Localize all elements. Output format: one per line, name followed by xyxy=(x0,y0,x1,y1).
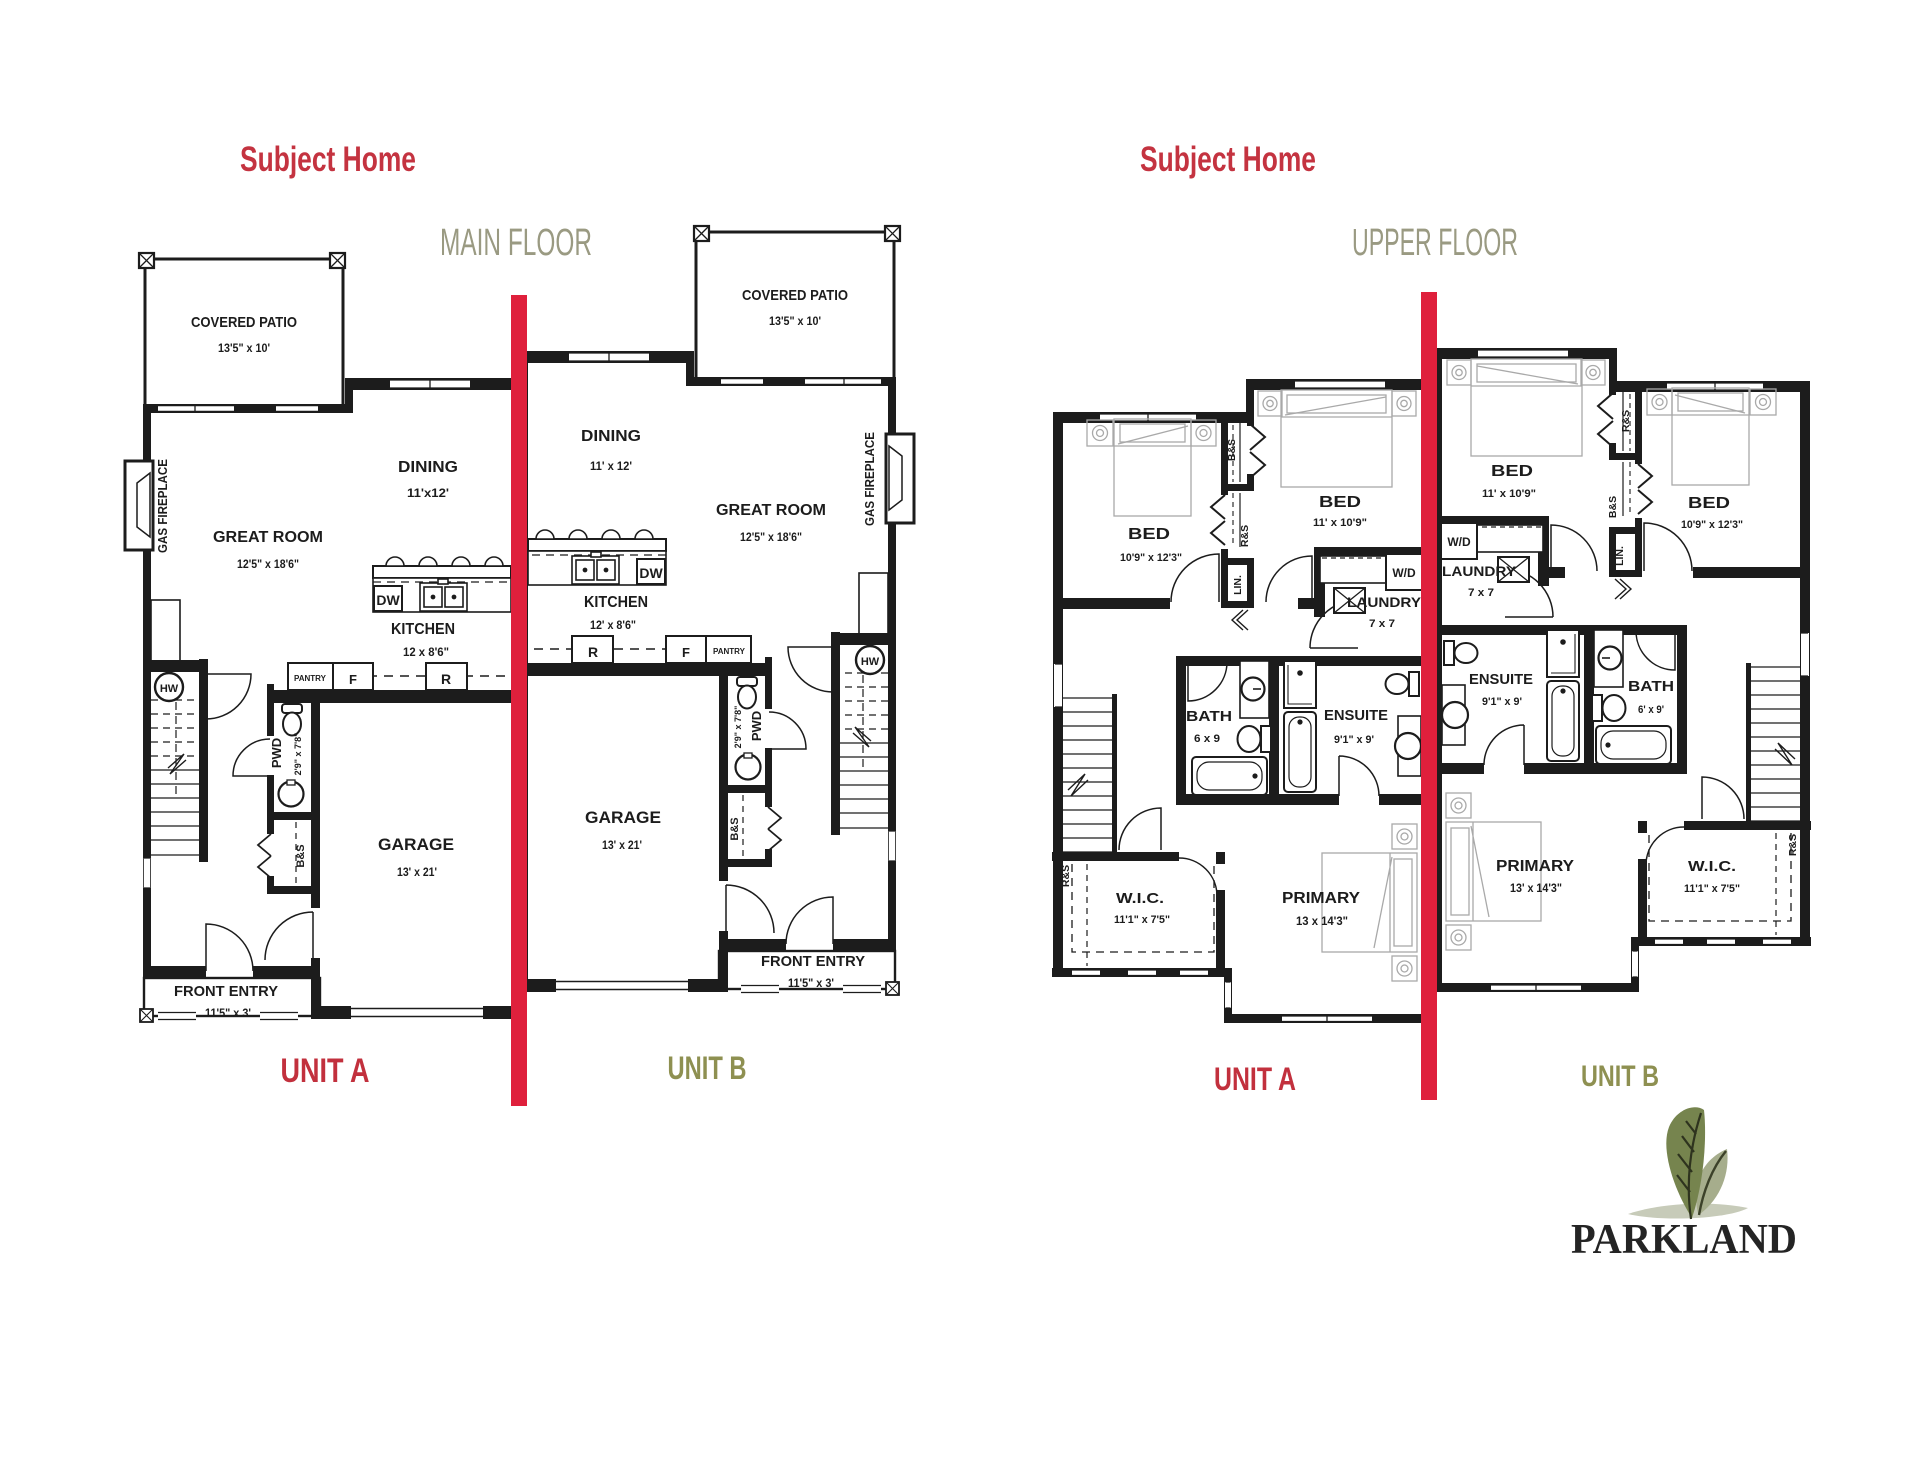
svg-text:KITCHEN: KITCHEN xyxy=(584,594,648,611)
svg-text:R&S: R&S xyxy=(1787,834,1799,856)
svg-text:13' x 21': 13' x 21' xyxy=(397,867,437,879)
svg-text:11'5" x 3': 11'5" x 3' xyxy=(205,1008,251,1020)
svg-text:PANTRY: PANTRY xyxy=(713,647,746,656)
svg-text:GREAT ROOM: GREAT ROOM xyxy=(213,529,323,546)
svg-text:UPPER FLOOR: UPPER FLOOR xyxy=(1352,222,1518,264)
svg-text:COVERED PATIO: COVERED PATIO xyxy=(742,287,848,304)
svg-text:11' x 10'9": 11' x 10'9" xyxy=(1482,488,1536,500)
svg-text:GAS FIREPLACE: GAS FIREPLACE xyxy=(156,459,170,553)
svg-text:GARAGE: GARAGE xyxy=(585,809,661,827)
svg-text:ENSUITE: ENSUITE xyxy=(1324,707,1388,724)
svg-text:BED: BED xyxy=(1491,463,1533,480)
svg-text:LAUNDRY: LAUNDRY xyxy=(1347,594,1422,610)
svg-text:W.I.C.: W.I.C. xyxy=(1116,890,1164,907)
svg-text:DW: DW xyxy=(639,565,663,581)
svg-text:FRONT ENTRY: FRONT ENTRY xyxy=(761,953,865,970)
svg-text:11'x12': 11'x12' xyxy=(407,486,449,500)
svg-text:HW: HW xyxy=(861,656,880,668)
svg-text:11' x 10'9": 11' x 10'9" xyxy=(1313,517,1367,529)
svg-text:UNIT B: UNIT B xyxy=(1581,1060,1659,1093)
svg-text:DINING: DINING xyxy=(398,459,458,476)
svg-text:UNIT A: UNIT A xyxy=(281,1052,370,1090)
svg-text:12' x 8'6": 12' x 8'6" xyxy=(590,620,636,632)
svg-text:F: F xyxy=(682,645,690,660)
svg-text:HW: HW xyxy=(160,683,179,695)
svg-text:PRIMARY: PRIMARY xyxy=(1496,858,1574,875)
svg-text:Subject Home: Subject Home xyxy=(1140,140,1316,179)
svg-text:LIN.: LIN. xyxy=(1614,546,1626,566)
svg-text:7 x 7: 7 x 7 xyxy=(1369,618,1395,630)
svg-text:BED: BED xyxy=(1128,526,1170,543)
svg-text:B&S: B&S xyxy=(729,817,741,840)
svg-text:COVERED PATIO: COVERED PATIO xyxy=(191,314,297,331)
svg-text:B&S: B&S xyxy=(1607,496,1619,518)
svg-text:BATH: BATH xyxy=(1186,708,1232,725)
svg-text:6' x 9': 6' x 9' xyxy=(1638,704,1664,716)
svg-text:LAUNDRY: LAUNDRY xyxy=(1442,563,1517,579)
svg-text:PRIMARY: PRIMARY xyxy=(1282,890,1360,907)
svg-text:LIN.: LIN. xyxy=(1232,575,1244,595)
svg-text:11'1" x 7'5": 11'1" x 7'5" xyxy=(1684,883,1740,895)
svg-text:11'5" x 3': 11'5" x 3' xyxy=(788,978,834,990)
svg-text:10'9" x 12'3": 10'9" x 12'3" xyxy=(1120,552,1182,564)
svg-text:13'5" x 10': 13'5" x 10' xyxy=(218,343,270,355)
svg-text:GREAT ROOM: GREAT ROOM xyxy=(716,502,826,519)
svg-text:KITCHEN: KITCHEN xyxy=(391,621,455,638)
svg-text:9'1" x 9': 9'1" x 9' xyxy=(1482,696,1522,708)
svg-text:W/D: W/D xyxy=(1392,566,1416,580)
svg-text:BED: BED xyxy=(1688,495,1730,512)
svg-text:F: F xyxy=(349,672,357,687)
svg-text:13' x 14'3": 13' x 14'3" xyxy=(1510,883,1562,895)
svg-text:9'1" x 9': 9'1" x 9' xyxy=(1334,734,1374,746)
svg-text:DINING: DINING xyxy=(581,428,641,445)
svg-text:10'9" x 12'3": 10'9" x 12'3" xyxy=(1681,519,1743,531)
svg-text:UNIT A: UNIT A xyxy=(1214,1061,1296,1097)
svg-text:R&S: R&S xyxy=(1620,410,1632,432)
svg-text:11'1" x 7'5": 11'1" x 7'5" xyxy=(1114,914,1170,926)
svg-text:B&S: B&S xyxy=(295,844,307,867)
svg-text:R: R xyxy=(441,671,451,687)
svg-text:13 x 14'3": 13 x 14'3" xyxy=(1296,916,1348,928)
svg-text:MAIN FLOOR: MAIN FLOOR xyxy=(440,222,592,264)
svg-text:BATH: BATH xyxy=(1628,678,1674,695)
svg-text:GARAGE: GARAGE xyxy=(378,836,454,854)
svg-text:11' x 12': 11' x 12' xyxy=(590,459,632,473)
svg-text:12 x 8'6": 12 x 8'6" xyxy=(403,647,449,659)
svg-text:13'5" x 10': 13'5" x 10' xyxy=(769,316,821,328)
svg-text:PARKLAND: PARKLAND xyxy=(1571,1217,1797,1263)
svg-text:Subject Home: Subject Home xyxy=(240,140,416,179)
svg-text:12'5" x 18'6": 12'5" x 18'6" xyxy=(740,532,802,544)
svg-text:PANTRY: PANTRY xyxy=(294,674,327,683)
svg-text:12'5" x 18'6": 12'5" x 18'6" xyxy=(237,559,299,571)
svg-text:W.I.C.: W.I.C. xyxy=(1688,858,1736,875)
svg-text:FRONT ENTRY: FRONT ENTRY xyxy=(174,983,278,1000)
svg-text:7 x 7: 7 x 7 xyxy=(1468,587,1494,599)
svg-text:R: R xyxy=(588,644,598,660)
svg-text:W/D: W/D xyxy=(1447,535,1471,549)
svg-text:BED: BED xyxy=(1319,494,1361,511)
svg-text:UNIT B: UNIT B xyxy=(668,1050,747,1086)
svg-text:13' x 21': 13' x 21' xyxy=(602,840,642,852)
svg-text:ENSUITE: ENSUITE xyxy=(1469,671,1533,688)
svg-text:R&S: R&S xyxy=(1060,865,1072,887)
svg-text:6 x 9: 6 x 9 xyxy=(1194,733,1220,745)
svg-text:GAS FIREPLACE: GAS FIREPLACE xyxy=(863,432,877,526)
svg-text:DW: DW xyxy=(376,592,400,608)
svg-text:PWD: PWD xyxy=(749,711,764,741)
svg-text:2'9" x 7'8": 2'9" x 7'8" xyxy=(733,706,743,749)
svg-text:PWD: PWD xyxy=(269,738,284,768)
svg-text:B&S: B&S xyxy=(1226,439,1238,461)
svg-text:2'9" x 7'8": 2'9" x 7'8" xyxy=(293,733,303,776)
svg-text:R&S: R&S xyxy=(1239,525,1251,547)
